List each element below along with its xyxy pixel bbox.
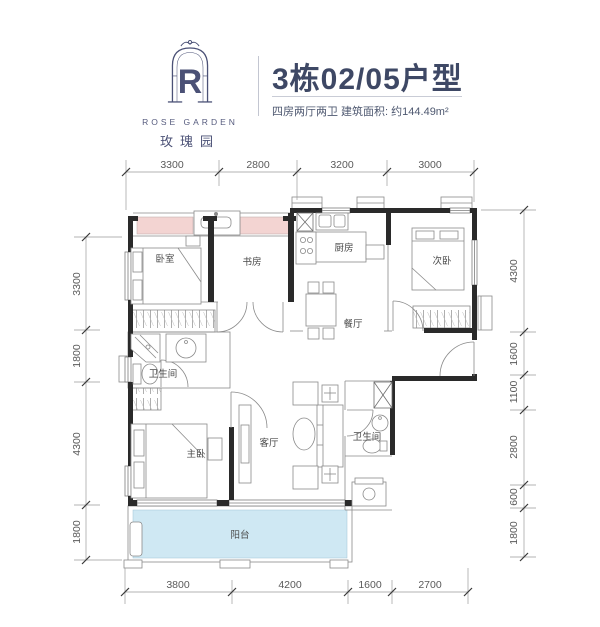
room-label-living-room: 客厅 [259,437,279,449]
dim-top-3: 3000 [418,159,442,171]
sofa-icon [293,382,343,489]
dim-right-5: 1800 [508,521,520,545]
room-label-kitchen: 厨房 [334,242,353,254]
dim-left-0: 3300 [71,272,83,296]
room-label-dining-room: 餐厅 [343,318,363,330]
room-label-balcony: 阳台 [230,529,249,541]
dim-bottom-2: 1600 [358,579,382,591]
tv-cabinet-icon [239,405,251,483]
dim-right-1: 1600 [508,342,520,366]
room-label-second-bedroom: 次卧 [432,255,452,267]
floorplan-card: R ROSE GARDEN 玫瑰园 3栋02/05户型 四房两厅两卫 建筑面积:… [0,0,600,627]
dim-right-2: 1100 [508,381,520,404]
sink-icon-bathroom2 [372,415,388,431]
dim-bottom-1: 4200 [278,579,302,591]
bed-icon-master-bedroom [131,424,222,498]
dim-top-0: 3300 [160,159,184,171]
dim-bottom-0: 3800 [166,579,190,591]
planter-icon [130,522,142,556]
dim-right-0: 4300 [508,259,520,283]
shower-icon [131,334,160,362]
room-label-bathroom-1: 卫生间 [149,368,178,380]
dining-table-icon [306,282,336,339]
dim-left-2: 4300 [71,432,83,456]
room-label-bedroom: 卧室 [155,253,174,265]
bay-window-sill [194,211,240,235]
floorplan-svg: 卧室 书房 厨房 次卧 餐厅 卫生间 主卧 客厅 卫生间 阳台 [0,0,600,627]
sink-icon-bathroom1 [166,334,206,362]
bed-icon-bedroom [131,236,201,304]
dim-top-1: 2800 [246,159,270,171]
dim-top-2: 3200 [330,159,354,171]
dim-bottom-3: 2700 [418,579,442,591]
dim-left-3: 1800 [71,520,83,544]
dim-right-3: 2800 [508,435,520,459]
room-label-study: 书房 [242,256,261,268]
dim-right-4: 600 [508,488,520,506]
washing-machine-icon [352,478,386,506]
room-label-master-bedroom: 主卧 [186,448,206,460]
room-label-bathroom-2: 卫生间 [353,431,382,443]
dim-left-1: 1800 [71,344,83,368]
